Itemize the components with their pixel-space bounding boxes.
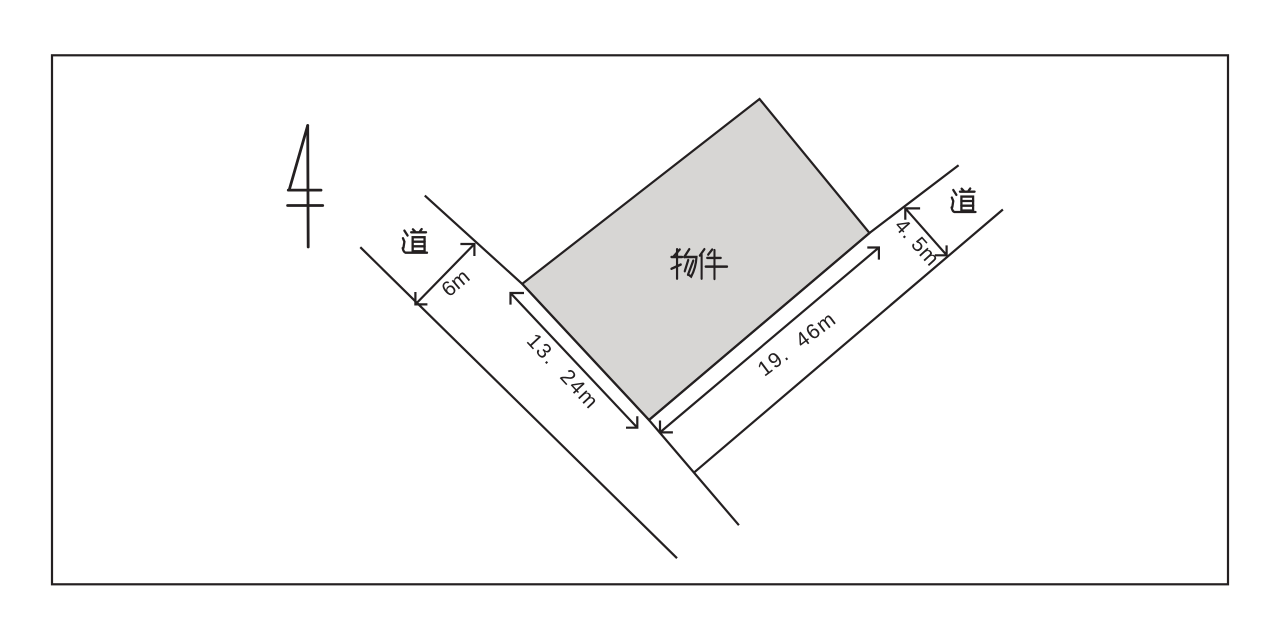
svg-text:6m: 6m — [437, 265, 474, 301]
